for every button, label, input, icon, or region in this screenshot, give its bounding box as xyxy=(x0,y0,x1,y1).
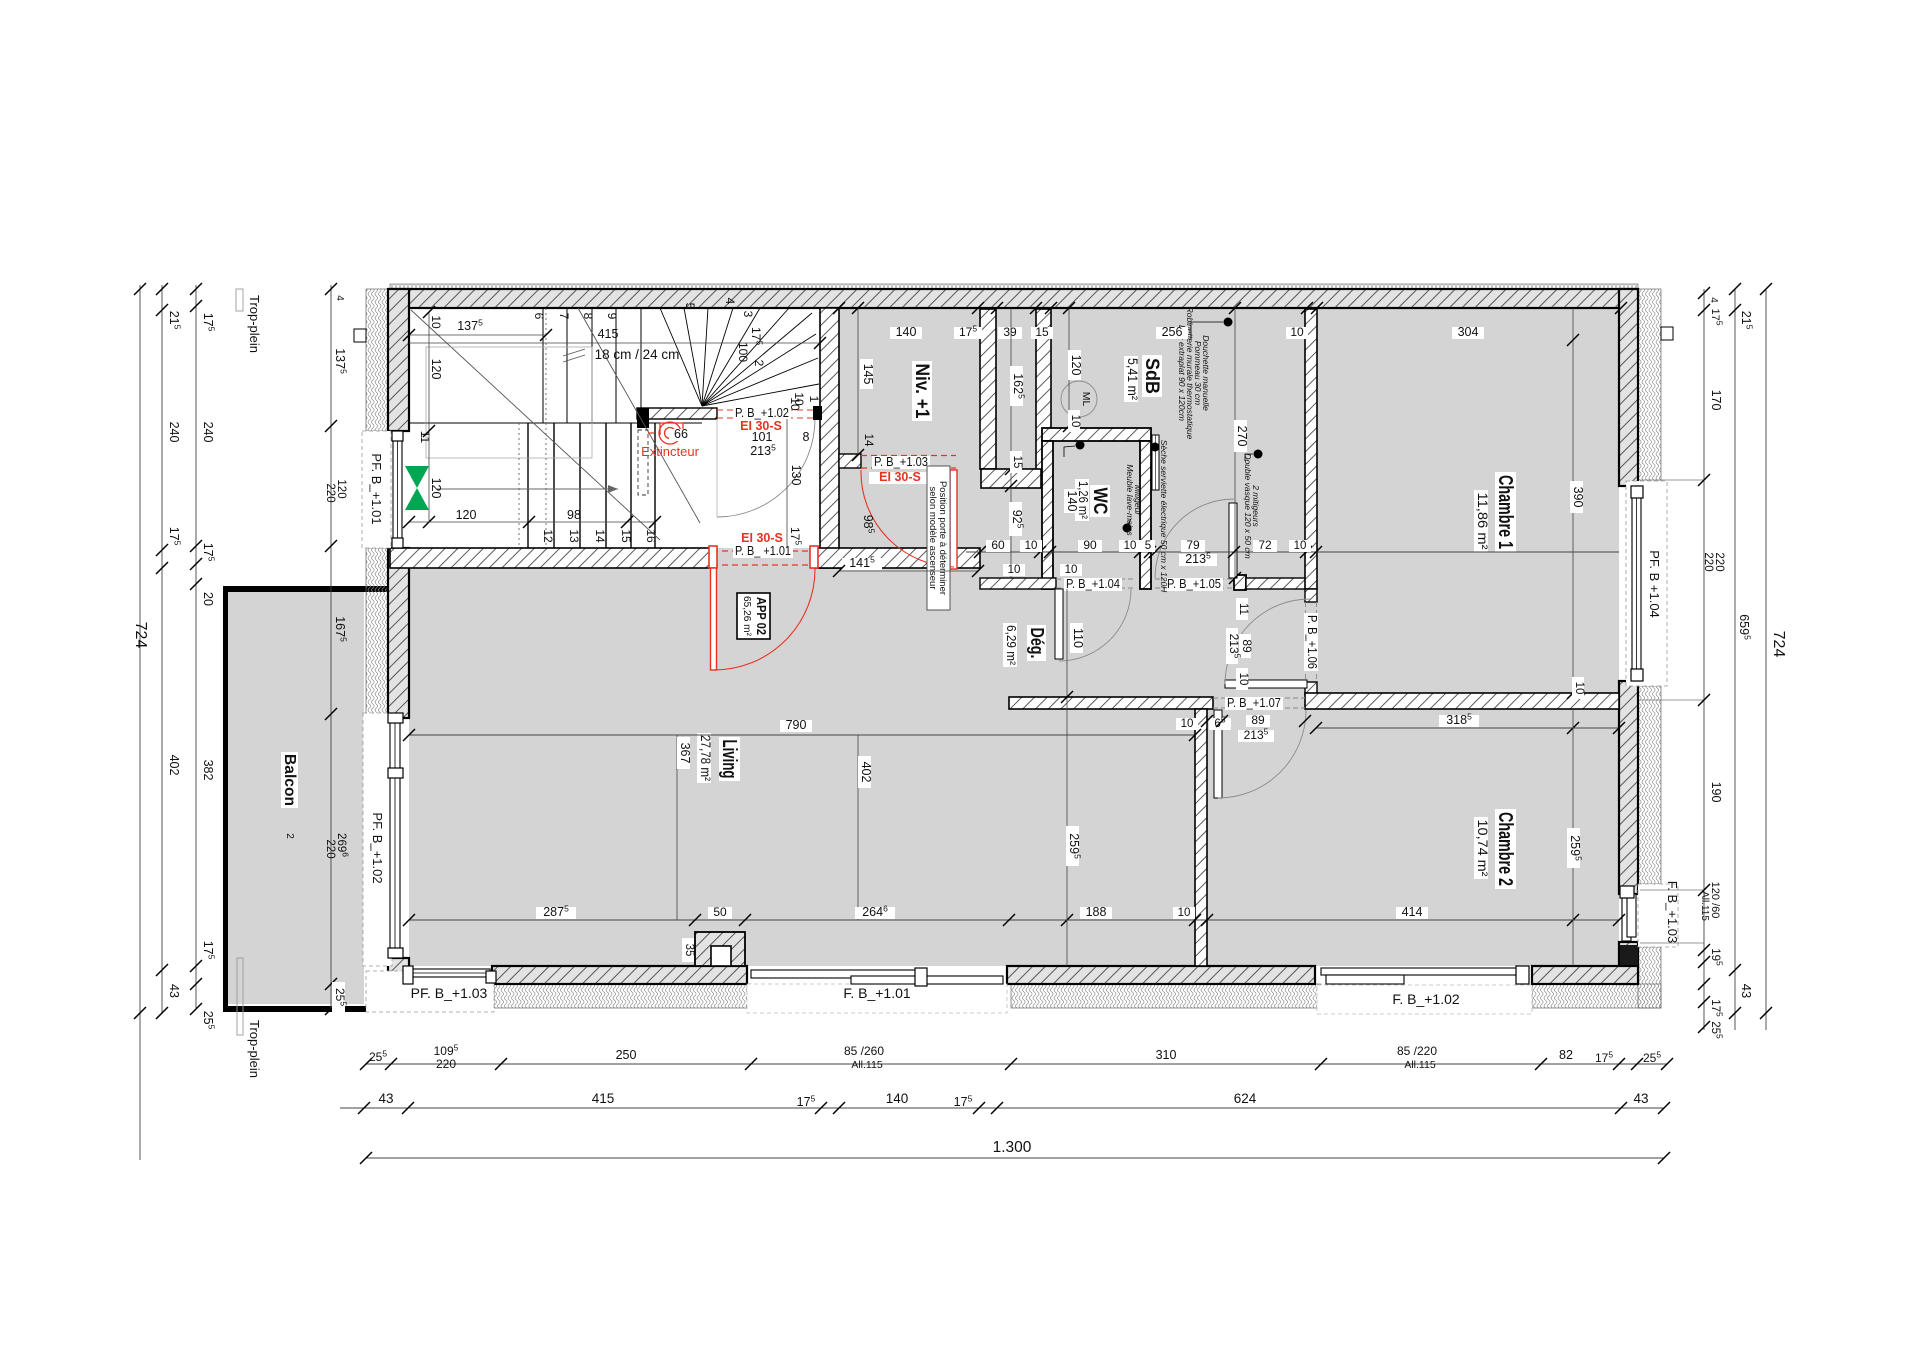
svg-text:270: 270 xyxy=(1235,426,1249,447)
svg-text:120: 120 xyxy=(1069,355,1083,376)
svg-text:Living: Living xyxy=(718,740,740,779)
svg-text:Dég.: Dég. xyxy=(1027,628,1047,659)
svg-text:1: 1 xyxy=(807,396,821,403)
svg-text:310: 310 xyxy=(1156,1048,1177,1062)
svg-text:Trop-plein: Trop-plein xyxy=(247,295,262,353)
svg-text:P. B_ +1.01: P. B_ +1.01 xyxy=(735,543,791,558)
svg-text:240: 240 xyxy=(201,422,215,443)
svg-text:Extincteur: Extincteur xyxy=(641,444,699,459)
svg-text:402: 402 xyxy=(859,762,873,783)
svg-text:220: 220 xyxy=(324,839,336,858)
svg-text:selon modèle ascenseur: selon modèle ascenseur xyxy=(927,487,938,590)
svg-text:10: 10 xyxy=(1124,540,1137,552)
svg-text:10: 10 xyxy=(1237,673,1249,686)
svg-text:8: 8 xyxy=(581,313,595,320)
svg-text:All.115: All.115 xyxy=(851,1059,882,1071)
svg-text:Mitigeur: Mitigeur xyxy=(1133,485,1143,516)
svg-text:10: 10 xyxy=(1573,682,1585,695)
svg-text:140: 140 xyxy=(886,1091,909,1106)
svg-text:7: 7 xyxy=(557,313,571,320)
svg-text:2 mitigeurs: 2 mitigeurs xyxy=(1251,484,1261,527)
svg-text:10: 10 xyxy=(1290,325,1304,339)
svg-text:240: 240 xyxy=(167,422,181,443)
svg-text:13: 13 xyxy=(567,529,581,543)
svg-text:P. B_+1.06: P. B_+1.06 xyxy=(1305,615,1319,669)
svg-text:16: 16 xyxy=(644,529,658,543)
svg-text:250: 250 xyxy=(616,1048,637,1062)
svg-text:4: 4 xyxy=(723,298,737,305)
svg-text:9: 9 xyxy=(605,313,619,320)
svg-text:724: 724 xyxy=(1770,631,1787,658)
svg-text:F. B_+1.02: F. B_+1.02 xyxy=(1392,991,1460,1007)
svg-text:90: 90 xyxy=(1083,538,1097,552)
svg-text:5: 5 xyxy=(683,303,697,310)
svg-text:12: 12 xyxy=(541,529,555,543)
svg-text:P. B_+1.04: P. B_+1.04 xyxy=(1066,576,1120,591)
svg-text:PF. B +1.04: PF. B +1.04 xyxy=(1647,550,1662,618)
svg-text:304: 304 xyxy=(1458,325,1479,339)
svg-text:220: 220 xyxy=(324,483,336,502)
svg-text:P. B_+1.03: P. B_+1.03 xyxy=(874,454,928,469)
svg-text:WC: WC xyxy=(1089,488,1110,515)
svg-text:P. B_+1.05: P. B_+1.05 xyxy=(1167,576,1221,591)
svg-text:P. B_+1.02: P. B_+1.02 xyxy=(735,405,789,420)
svg-text:27,78 m²: 27,78 m² xyxy=(698,735,713,781)
svg-text:Niv. +1: Niv. +1 xyxy=(911,364,932,419)
svg-text:145: 145 xyxy=(861,364,875,385)
svg-text:624: 624 xyxy=(1234,1091,1257,1106)
svg-text:Balcon: Balcon xyxy=(281,754,298,806)
svg-text:PF. B_+1.02: PF. B_+1.02 xyxy=(370,812,385,883)
svg-text:79: 79 xyxy=(1186,538,1200,552)
svg-text:140: 140 xyxy=(896,325,917,339)
svg-text:15: 15 xyxy=(619,529,633,543)
svg-text:414: 414 xyxy=(1402,905,1423,919)
svg-text:20: 20 xyxy=(201,592,215,606)
svg-text:110: 110 xyxy=(1071,628,1085,648)
svg-text:APP 02: APP 02 xyxy=(754,597,769,635)
svg-text:382: 382 xyxy=(201,760,215,781)
svg-text:39: 39 xyxy=(1003,325,1017,339)
svg-text:14: 14 xyxy=(593,529,607,543)
svg-text:2: 2 xyxy=(752,360,766,367)
svg-text:11: 11 xyxy=(1237,603,1249,615)
svg-text:10: 10 xyxy=(1178,907,1191,919)
svg-text:10: 10 xyxy=(429,315,443,329)
svg-text:ML: ML xyxy=(1080,392,1092,407)
svg-text:724: 724 xyxy=(132,622,149,649)
svg-text:Chambre 1: Chambre 1 xyxy=(1494,475,1516,549)
svg-text:66: 66 xyxy=(674,427,688,441)
svg-text:3: 3 xyxy=(741,311,755,318)
svg-text:6: 6 xyxy=(532,313,546,320)
svg-text:256: 256 xyxy=(1162,325,1183,339)
svg-text:PF. B_+1.01: PF. B_+1.01 xyxy=(369,453,384,524)
svg-text:10: 10 xyxy=(788,397,802,411)
svg-text:170: 170 xyxy=(1709,390,1723,411)
svg-text:14: 14 xyxy=(862,434,874,447)
svg-text:220: 220 xyxy=(436,1057,456,1071)
svg-text:82: 82 xyxy=(1559,1048,1573,1062)
svg-text:10: 10 xyxy=(1181,718,1194,730)
svg-text:140: 140 xyxy=(1065,491,1079,512)
svg-text:5,41 m²: 5,41 m² xyxy=(1125,358,1140,400)
svg-text:43: 43 xyxy=(378,1091,393,1106)
svg-text:Sèche serviette électrique 50: Sèche serviette électrique 50 cm x 120H xyxy=(1159,440,1169,593)
svg-text:390: 390 xyxy=(1571,487,1585,508)
svg-text:10: 10 xyxy=(1069,415,1081,428)
svg-text:Chambre 2: Chambre 2 xyxy=(1494,812,1516,886)
svg-text:415: 415 xyxy=(598,327,619,341)
svg-text:43: 43 xyxy=(1633,1091,1648,1106)
svg-text:10: 10 xyxy=(1025,540,1038,552)
svg-text:120: 120 xyxy=(429,478,443,499)
svg-text:18 cm / 24 cm: 18 cm / 24 cm xyxy=(595,347,680,362)
svg-text:15: 15 xyxy=(1011,456,1023,469)
svg-text:120: 120 xyxy=(429,359,443,380)
svg-text:220: 220 xyxy=(1702,552,1714,571)
svg-text:101: 101 xyxy=(752,430,773,444)
svg-text:Douchette manuelle: Douchette manuelle xyxy=(1201,335,1211,411)
svg-text:367: 367 xyxy=(678,743,692,764)
svg-text:PF. B_+1.03: PF. B_+1.03 xyxy=(411,985,488,1001)
svg-text:190: 190 xyxy=(1709,782,1723,803)
svg-text:85 /220: 85 /220 xyxy=(1397,1044,1437,1058)
svg-text:89: 89 xyxy=(1240,639,1254,653)
svg-text:8: 8 xyxy=(803,430,810,444)
svg-text:F. B_+1.01: F. B_+1.01 xyxy=(843,985,911,1001)
svg-text:4: 4 xyxy=(1708,297,1719,303)
svg-text:415: 415 xyxy=(592,1091,615,1106)
svg-text:85 /260: 85 /260 xyxy=(844,1044,884,1058)
svg-text:120: 120 xyxy=(456,508,477,522)
svg-text:10,74 m²: 10,74 m² xyxy=(1475,820,1490,878)
svg-text:35: 35 xyxy=(683,944,695,957)
svg-text:Trop-plein: Trop-plein xyxy=(247,1020,262,1078)
svg-text:11: 11 xyxy=(418,431,432,444)
svg-text:130: 130 xyxy=(789,465,803,486)
svg-text:43: 43 xyxy=(1739,984,1754,998)
svg-text:SdB: SdB xyxy=(1141,358,1162,394)
svg-text:2: 2 xyxy=(284,833,295,839)
svg-text:188: 188 xyxy=(1086,905,1107,919)
svg-text:98: 98 xyxy=(567,508,581,522)
svg-text:10: 10 xyxy=(1008,564,1021,576)
svg-text:P. B_+1.07: P. B_+1.07 xyxy=(1227,695,1281,710)
svg-text:790: 790 xyxy=(786,718,807,732)
svg-text:65,26 m²: 65,26 m² xyxy=(741,596,752,637)
svg-text:15: 15 xyxy=(1035,325,1049,339)
svg-text:60: 60 xyxy=(991,538,1005,552)
svg-text:5: 5 xyxy=(1145,540,1151,552)
svg-text:1.300: 1.300 xyxy=(993,1139,1032,1156)
svg-text:All.115: All.115 xyxy=(1404,1059,1435,1071)
svg-text:10: 10 xyxy=(1065,564,1078,576)
svg-text:All.115: All.115 xyxy=(1699,891,1710,921)
svg-text:220: 220 xyxy=(1713,552,1725,571)
svg-text:10: 10 xyxy=(1294,540,1307,552)
svg-text:43: 43 xyxy=(167,984,181,998)
svg-text:11,86 m²: 11,86 m² xyxy=(1475,493,1490,551)
svg-text:EI 30-S: EI 30-S xyxy=(879,470,921,484)
svg-text:402: 402 xyxy=(167,755,181,776)
svg-text:6,29 m²: 6,29 m² xyxy=(1004,625,1019,666)
svg-text:72: 72 xyxy=(1258,538,1272,552)
svg-text:100: 100 xyxy=(736,342,750,362)
svg-text:89: 89 xyxy=(1251,713,1265,727)
svg-text:4: 4 xyxy=(334,295,345,301)
svg-text:50: 50 xyxy=(713,905,727,919)
